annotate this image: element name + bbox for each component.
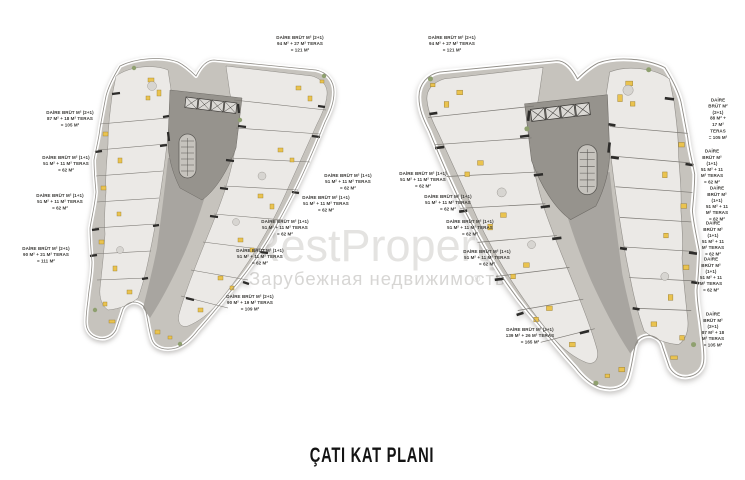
apartment-area-label: DAİRE BRÜT M² (1+1) 51 M² + 11 M² TERAS … [424, 195, 471, 214]
apartment-area-label: DAİRE BRÜT M² (1+1) 51 M² + 11 M² TERAS … [399, 172, 446, 191]
apartment-area-label: DAİRE BRÜT M² (1+1) 51 M² + 11 M² TERAS … [699, 149, 725, 187]
apartment-area-label: DAİRE BRÜT M² (2+1) 88 M² + 17 M² TERAS … [707, 98, 729, 142]
apartment-area-label: DAİRE BRÜT M² (1+1) 51 M² + 11 M² TERAS … [446, 220, 493, 239]
floor-plan-page: RestProperty ® Зарубежная недвижимость [0, 0, 745, 480]
apartment-area-label: DAİRE BRÜT M² (2+1) 90 M² + 19 M² TERAS … [226, 295, 273, 314]
apartment-area-label: DAİRE BRÜT M² (1+1) 51 M² + 11 M² TERAS … [697, 257, 724, 295]
apartment-area-label: DAİRE BRÜT M² (3+1) 139 M² + 26 M² TERAS… [506, 328, 554, 347]
floor-plan-left-block [86, 59, 334, 350]
apartment-area-label: DAİRE BRÜT M² (1+1) 51 M² + 11 M² TERAS … [706, 186, 728, 224]
apartment-area-label: DAİRE BRÜT M² (1+1) 51 M² + 11 M² TERAS … [42, 156, 89, 175]
apartment-area-label: DAİRE BRÜT M² (2+1) 87 M² + 18 M² TERAS … [46, 111, 93, 130]
page-title: ÇATI KAT PLANI [310, 444, 434, 468]
apartment-area-label: DAİRE BRÜT M² (1+1) 51 M² + 11 M² TERAS … [261, 220, 308, 239]
apartment-area-label: DAİRE BRÜT M² (2+1) 94 M² + 27 M² TERAS … [276, 36, 323, 55]
apartment-area-label: DAİRE BRÜT M² (2+1) 94 M² + 27 M² TERAS … [428, 36, 475, 55]
apartment-area-label: DAİRE BRÜT M² (1+1) 51 M² + 11 M² TERAS … [302, 196, 349, 215]
apartment-area-label: DAİRE BRÜT M² (2+1) 90 M² + 21 M² TERAS … [22, 247, 69, 266]
apartment-area-label: DAİRE BRÜT M² (1+1) 51 M² + 11 M² TERAS … [463, 250, 510, 269]
apartment-area-label: DAİRE BRÜT M² (1+1) 51 M² + 11 M² TERAS … [236, 249, 283, 268]
apartment-area-label: DAİRE BRÜT M² (1+1) 51 M² + 11 M² TERAS … [700, 221, 726, 259]
apartment-area-label: DAİRE BRÜT M² (1+1) 51 M² + 11 M² TERAS … [324, 174, 371, 193]
apartment-area-label: DAİRE BRÜT M² (1+1) 51 M² + 11 M² TERAS … [36, 194, 83, 213]
apartment-area-label: DAİRE BRÜT M² (2+1) 87 M² + 18 M² TERAS … [700, 312, 726, 350]
floor-plans-canvas [0, 0, 745, 480]
